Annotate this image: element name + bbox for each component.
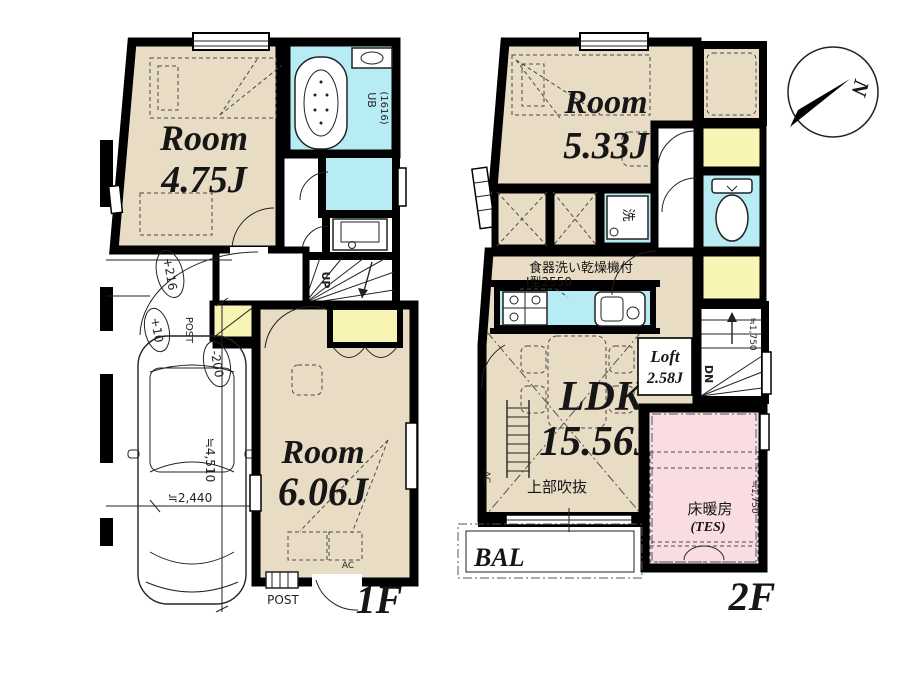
storage-2f-top — [700, 45, 763, 122]
car-length-dim: ≒4,510 — [203, 438, 217, 482]
washroom-1f — [300, 154, 406, 214]
floor-label-2f: 2F — [728, 574, 776, 619]
up-label: UP — [319, 272, 332, 289]
window-washroom — [398, 168, 406, 206]
washer-label: 洗 — [620, 208, 635, 221]
room-606-name: Room — [280, 434, 364, 471]
dn-label: DN — [702, 365, 715, 383]
post-box: POST — [266, 572, 299, 607]
post-box-label: POST — [267, 593, 299, 607]
washer-space: 洗 — [601, 190, 654, 246]
room-533-name: Room — [563, 84, 647, 121]
room-475-size: 4.75J — [160, 159, 248, 201]
closet-2f-yellow-b — [700, 253, 763, 302]
loft-box: Loft 2.58J — [638, 338, 692, 395]
corridor-2f — [655, 125, 697, 252]
window-heated-room — [760, 414, 769, 450]
car-width-dim: ≒2,440 — [168, 491, 212, 505]
heated-room: 床暖房 (TES) ≒1,750 — [645, 408, 769, 568]
vanity-room-1f — [302, 214, 396, 256]
floor-plan-page: Room 4.75J UB (1616) — [0, 0, 900, 675]
genkan-1f — [212, 303, 258, 339]
closet-2f-yellow-a — [700, 125, 763, 170]
bath-counter — [352, 48, 392, 68]
heating-sub-label: (TES) — [691, 520, 726, 535]
balcony-label: BAL — [473, 543, 525, 572]
entrance-door-gap — [312, 574, 362, 587]
window-606-left — [250, 475, 261, 511]
ub-size-label: (1616) — [378, 91, 389, 124]
closet-row-2f: 洗 — [495, 190, 654, 248]
window-1f-left — [109, 185, 123, 213]
loft-name: Loft — [649, 347, 681, 366]
floor-label-1f: 1F — [356, 577, 403, 622]
floor-plan-1f: Room 4.75J UB (1616) — [100, 33, 417, 622]
heating-label: 床暖房 — [687, 500, 732, 518]
loft-size: 2.58J — [646, 370, 684, 387]
height-dim-heated: ≒1,750 — [749, 480, 759, 514]
room-475-name: Room — [159, 118, 248, 158]
ub-label: UB — [365, 92, 378, 108]
level-10: +10 — [148, 316, 166, 343]
room-606-size: 6.06J — [278, 469, 370, 514]
floor-plan-drawing: Room 4.75J UB (1616) — [0, 0, 900, 675]
balcony: BAL — [458, 524, 642, 578]
window-606-right — [406, 423, 417, 489]
kitchen — [490, 280, 660, 334]
sink — [595, 292, 645, 326]
window-stairs-2f — [762, 352, 771, 394]
level-m200: -200 — [208, 349, 227, 378]
room-533-size: 5.33J — [563, 125, 650, 167]
hall-door-gap — [230, 247, 268, 256]
stove — [503, 292, 547, 325]
floor-plan-2f: Room 5.33J 洗 — [458, 33, 776, 619]
stairs-1f: UP — [300, 256, 396, 308]
kitchen-type-note: I型2550 — [526, 275, 572, 289]
post-entry-label: POST — [183, 317, 194, 344]
stairs-2f: DN ≒1,750 — [697, 305, 771, 400]
ldk-name: LDK — [558, 374, 646, 420]
closet-606 — [330, 307, 400, 345]
bathroom-ub: UB (1616) — [286, 42, 396, 154]
room-606: Room 6.06J AC — [250, 305, 417, 610]
toilet-2f — [700, 172, 763, 250]
room-475: Room 4.75J — [109, 33, 286, 250]
height-dim-stairs: ≒1,750 — [747, 317, 757, 351]
ac-2f-label: AC — [481, 471, 491, 483]
compass: N — [788, 47, 878, 137]
ldk-size: 15.56J — [539, 419, 657, 465]
void-note: 上部吹抜 — [527, 478, 587, 496]
bathtub — [295, 57, 347, 149]
ac-1f-label: AC — [342, 561, 354, 571]
